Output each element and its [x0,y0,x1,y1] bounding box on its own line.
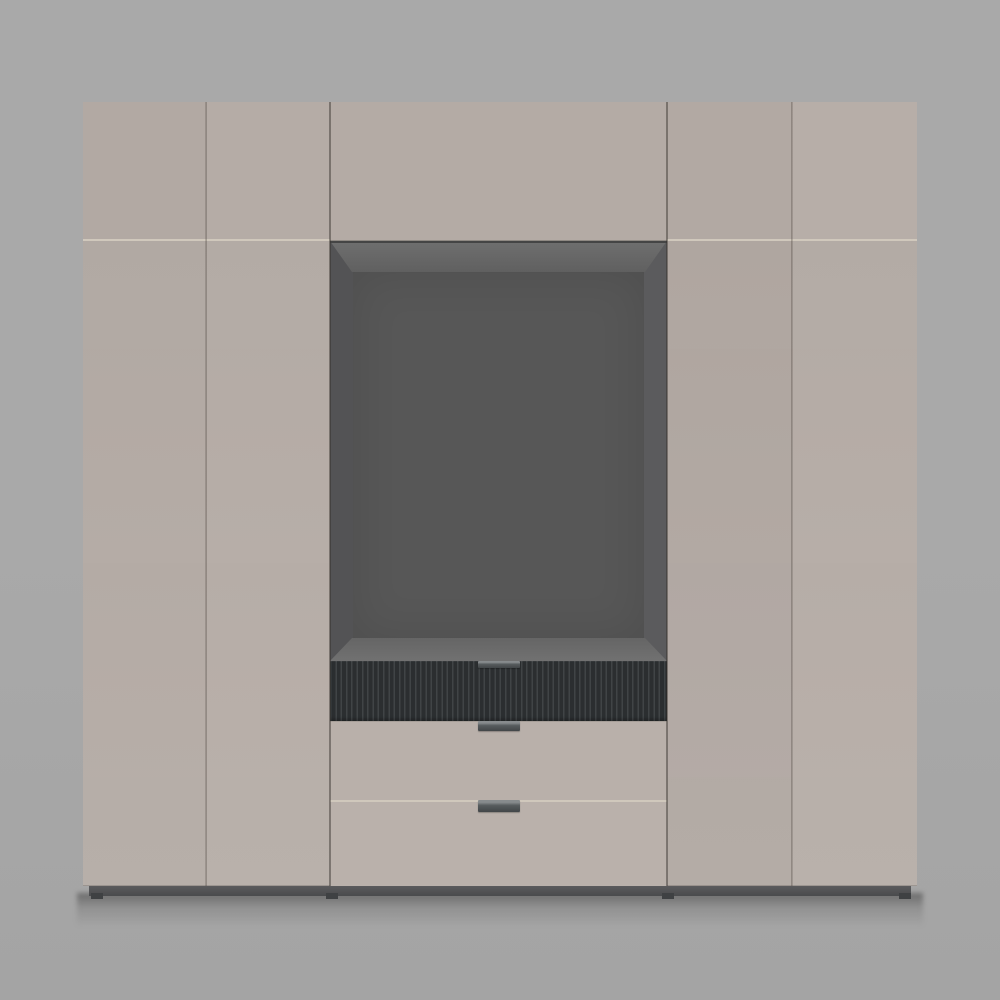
plinth-foot [662,893,674,899]
door-seam-center-right [666,102,668,886]
wardrobe-unit [83,102,917,896]
fluted-drawer-front[interactable] [330,661,667,721]
niche-left-wall [330,241,353,661]
scene-background [0,0,1000,1000]
fluted-drawer-handle[interactable] [478,661,520,668]
top-center-flap-door[interactable] [330,102,667,241]
plinth-foot [91,893,103,899]
tall-door-left-outer[interactable] [83,241,206,886]
plinth [89,886,911,896]
plinth-foot [326,893,338,899]
top-cabinet-door-1[interactable] [83,102,206,241]
middle-drawer-front[interactable] [330,721,667,800]
top-cabinet-door-4[interactable] [792,102,917,241]
plinth-foot [899,893,911,899]
top-cabinet-door-3[interactable] [667,102,792,241]
bottom-drawer-front[interactable] [330,800,667,886]
niche-top-edge [330,241,667,243]
floor-shadow [77,893,923,935]
door-seam-center-left [329,102,331,886]
tall-door-left-inner[interactable] [206,241,330,886]
door-seam-left [205,102,207,886]
top-cabinet-door-2[interactable] [206,102,330,241]
tall-door-right-outer[interactable] [792,241,917,886]
niche-right-wall [644,241,667,661]
niche-shelf-floor [330,638,667,661]
bottom-drawer-handle[interactable] [478,800,520,812]
door-seam-right [791,102,793,886]
middle-drawer-handle[interactable] [478,721,520,731]
media-niche [330,241,667,661]
niche-ceiling [330,241,667,272]
niche-back-wall [352,271,645,639]
tall-door-right-inner[interactable] [667,241,792,886]
